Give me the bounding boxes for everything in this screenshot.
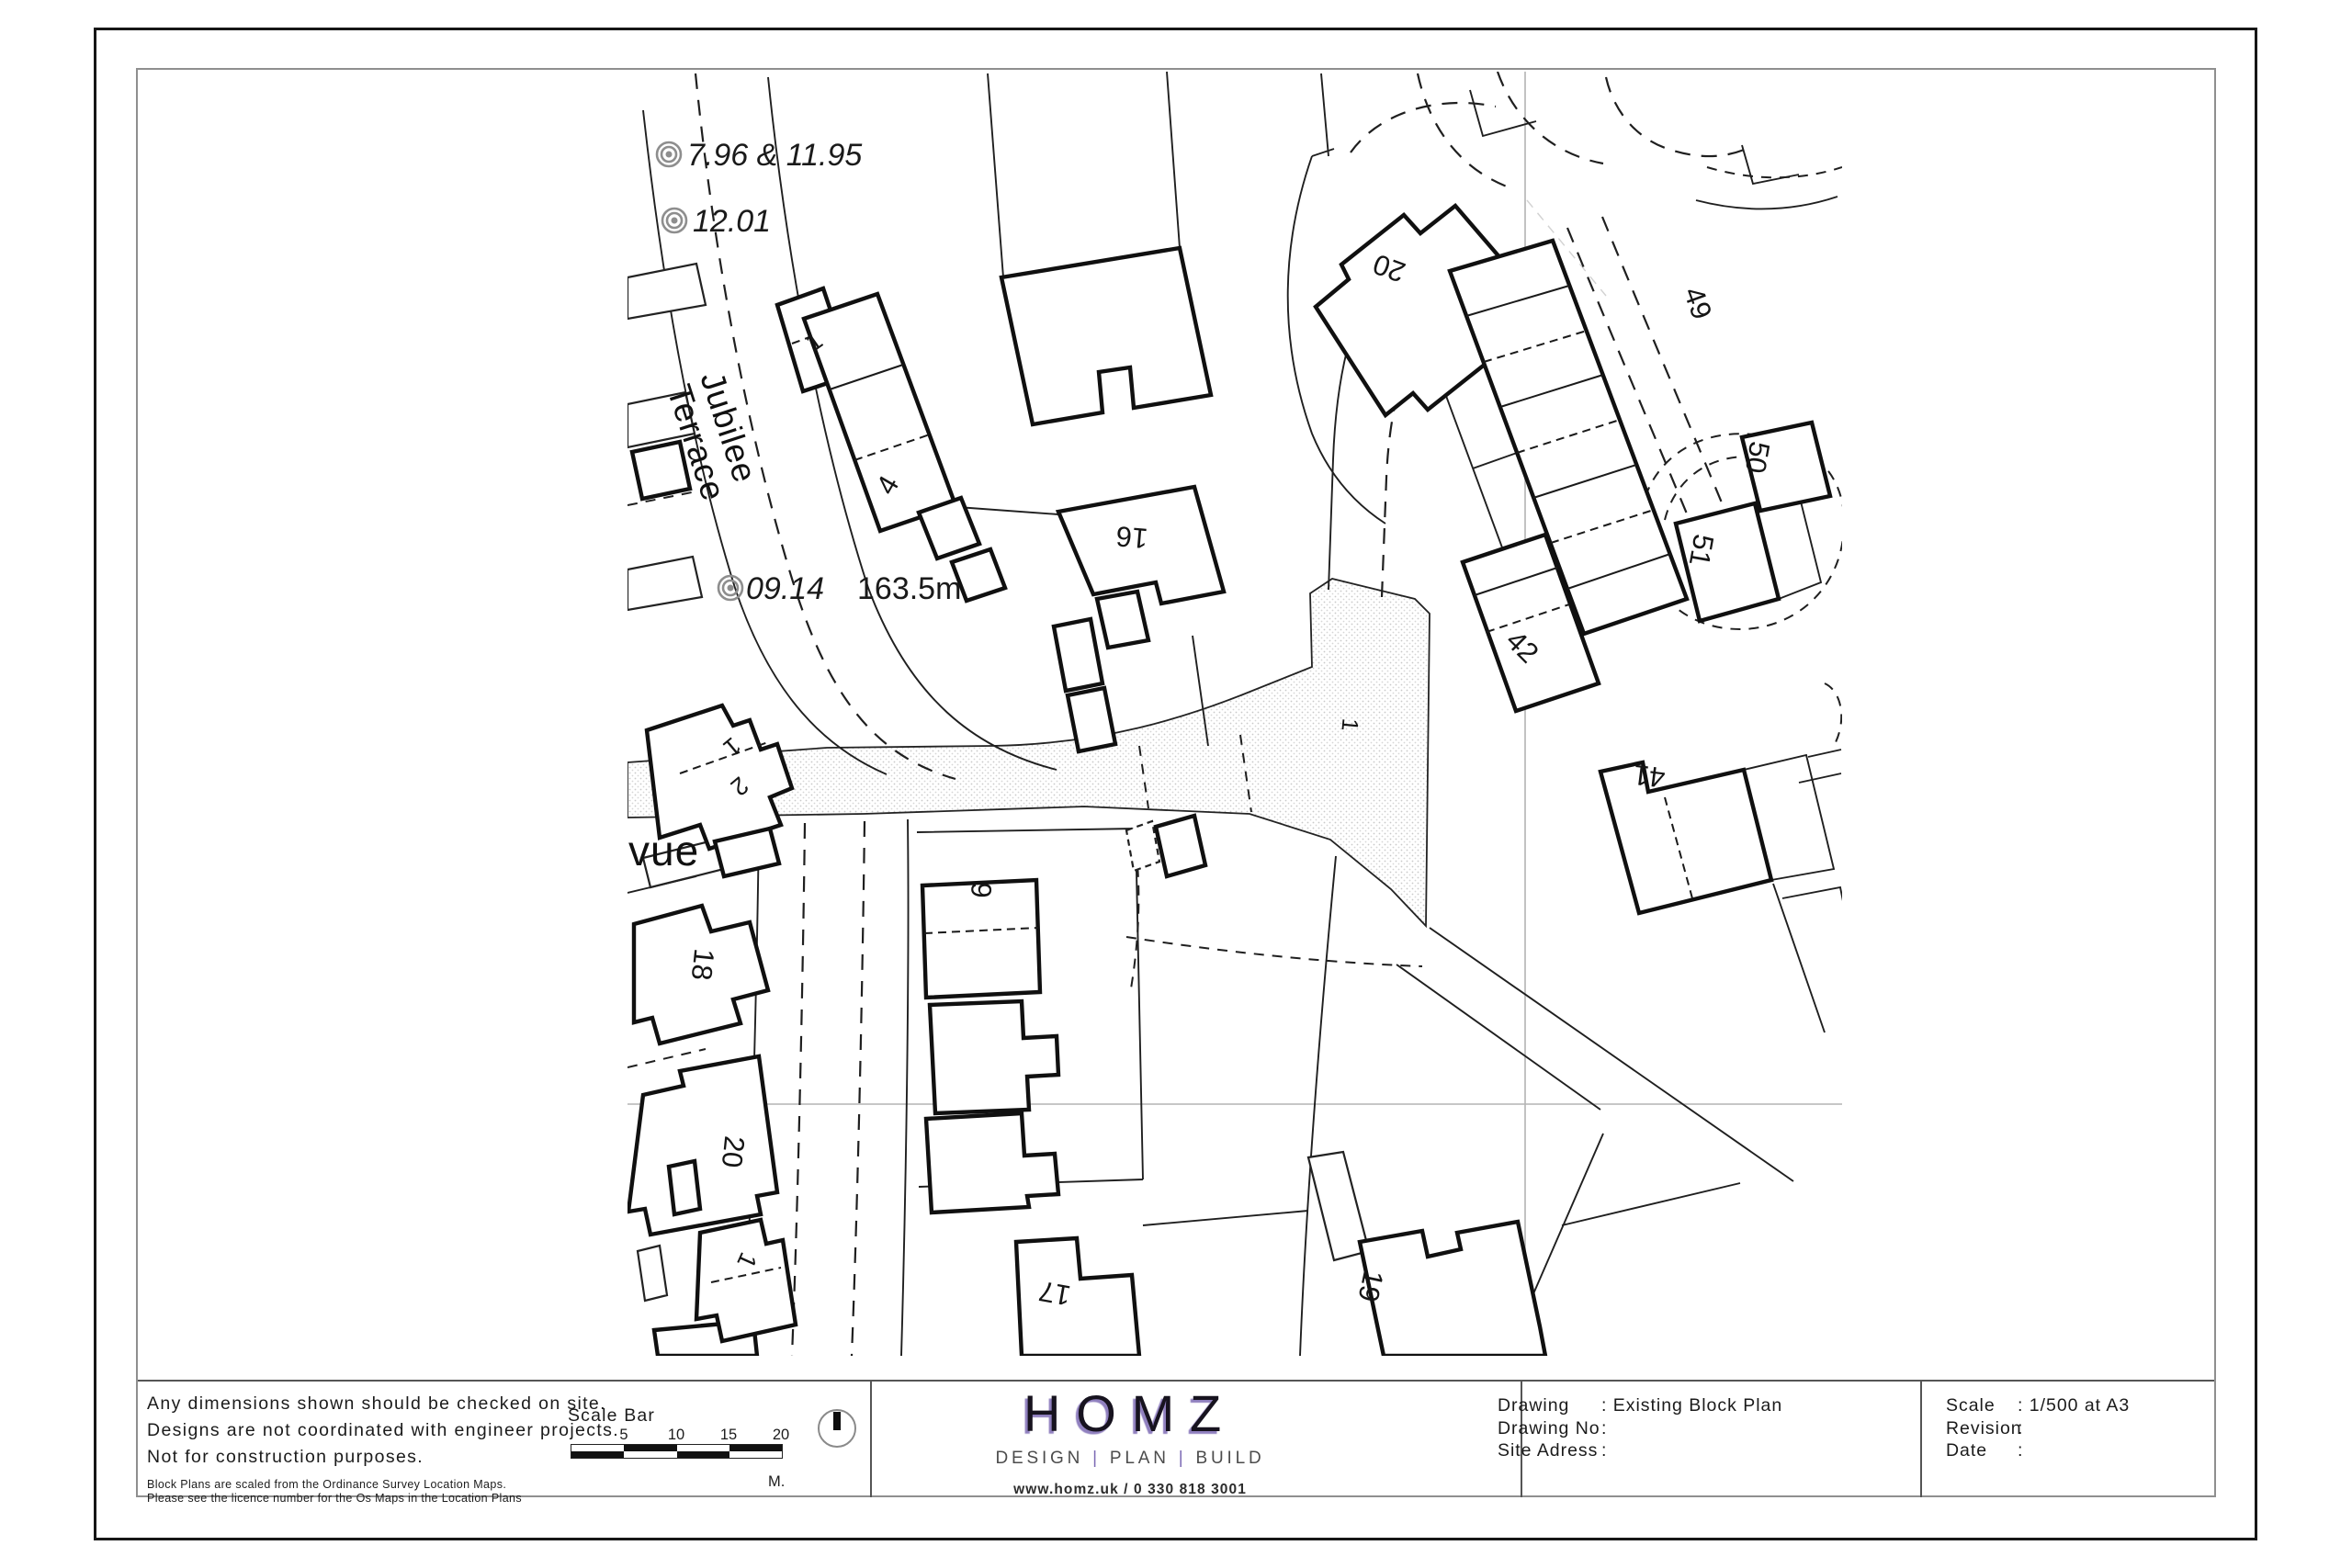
terrace-4 [804,294,955,531]
street-name-label: vue [628,827,699,874]
road-dashed [1418,72,1603,188]
plot-number-label: 41 [1632,759,1667,795]
scale-tick: 10 [668,1427,684,1444]
field-row: Site Adress: [1498,1439,1782,1462]
scale-bar-graphic [571,1445,782,1458]
building-19 [1360,1222,1545,1356]
road-dashed-south [792,821,865,1356]
building-17 [1016,1238,1139,1356]
plot-number-label: 9 [965,882,998,898]
logo-contact: www.homz.uk / 0 330 818 3001 [919,1482,1341,1498]
field-row: Revision: [1946,1417,2130,1440]
scale-bar-ticks: 5 10 15 20 [568,1427,797,1445]
building-20-south [628,1056,777,1235]
plot-number-label: 51 [1683,532,1720,569]
field-row: Drawing No: [1498,1417,1782,1440]
site-plan-map: 7.96 & 11.9512.0109.14 14162049505142411… [0,0,2352,1568]
plot-number-label: 18 [685,947,720,982]
building [930,1001,1058,1113]
benchmark-icon [672,218,678,224]
building [926,1113,1058,1213]
road-dashed [1351,103,1496,152]
scale-bar-unit: M. [768,1473,785,1491]
plot-number-label: 16 [1114,520,1148,555]
drawing-sheet: { "sheet": { "background": "#ffffff", "o… [0,0,2352,1568]
map-drawing: 7.96 & 11.9512.0109.14 14162049505142411… [628,72,1858,1356]
note-small-line: Please see the licence number for the Os… [147,1492,619,1506]
shed [1156,816,1205,876]
logo-section: HOMZ DESIGN|PLAN|BUILD www.homz.uk / 0 3… [919,1383,1341,1498]
survey-level-label: 09.14 [746,571,824,606]
scale-bar-label: Scale Bar [568,1405,797,1427]
scale-tick: 20 [773,1427,789,1444]
survey-level-label: 12.01 [693,204,771,239]
plot-number-label: 1 [1336,717,1363,732]
note-line: Any dimensions shown should be checked o… [147,1391,619,1417]
notes-section: Any dimensions shown should be checked o… [147,1391,619,1506]
field-row: Scale: 1/500 at A3 [1946,1394,2130,1417]
spot-height-label: 163.5m [857,571,961,606]
title-block-divider [870,1382,872,1497]
plot-number-label: 17 [1036,1275,1073,1312]
building-large-north [1001,248,1211,424]
plot-boundaries [988,72,1329,277]
note-line: Designs are not coordinated with enginee… [147,1417,619,1444]
field-row: Date: [1946,1439,2130,1462]
pipe-separator: | [1083,1449,1110,1468]
logo-tagline: DESIGN|PLAN|BUILD [919,1449,1341,1469]
scale-tick: 15 [720,1427,737,1444]
plot-number-label: 49 [1678,283,1719,323]
sheet-info: Scale: 1/500 at A3 Revision: Date: [1946,1394,2130,1462]
drawing-info: Drawing: Existing Block Plan Drawing No:… [1498,1394,1782,1462]
plot-number-label: 50 [1739,439,1776,476]
pipe-separator: | [1170,1449,1196,1468]
title-block-divider [1920,1382,1922,1497]
plot-number-label: 20 [716,1134,751,1169]
outbuilding [669,1161,700,1214]
scale-tick: 5 [619,1427,628,1444]
plot-number-label: 19 [1351,1267,1389,1304]
building-41 [1600,762,1771,913]
field-row: Drawing: Existing Block Plan [1498,1394,1782,1417]
survey-level-label: 7.96 & 11.95 [687,138,862,173]
note-small-line: Block Plans are scaled from the Ordinanc… [147,1478,619,1492]
title-block: Any dimensions shown should be checked o… [138,1380,2214,1497]
benchmark-icon [666,152,673,158]
logo-homz: HOMZ [919,1383,1341,1443]
benchmark-icon [728,585,734,592]
north-arrow-icon [818,1409,856,1448]
note-line: Not for construction purposes. [147,1444,619,1471]
road-dashed [1606,77,1750,156]
scale-bar: Scale Bar 5 10 15 20 M. [568,1405,797,1458]
